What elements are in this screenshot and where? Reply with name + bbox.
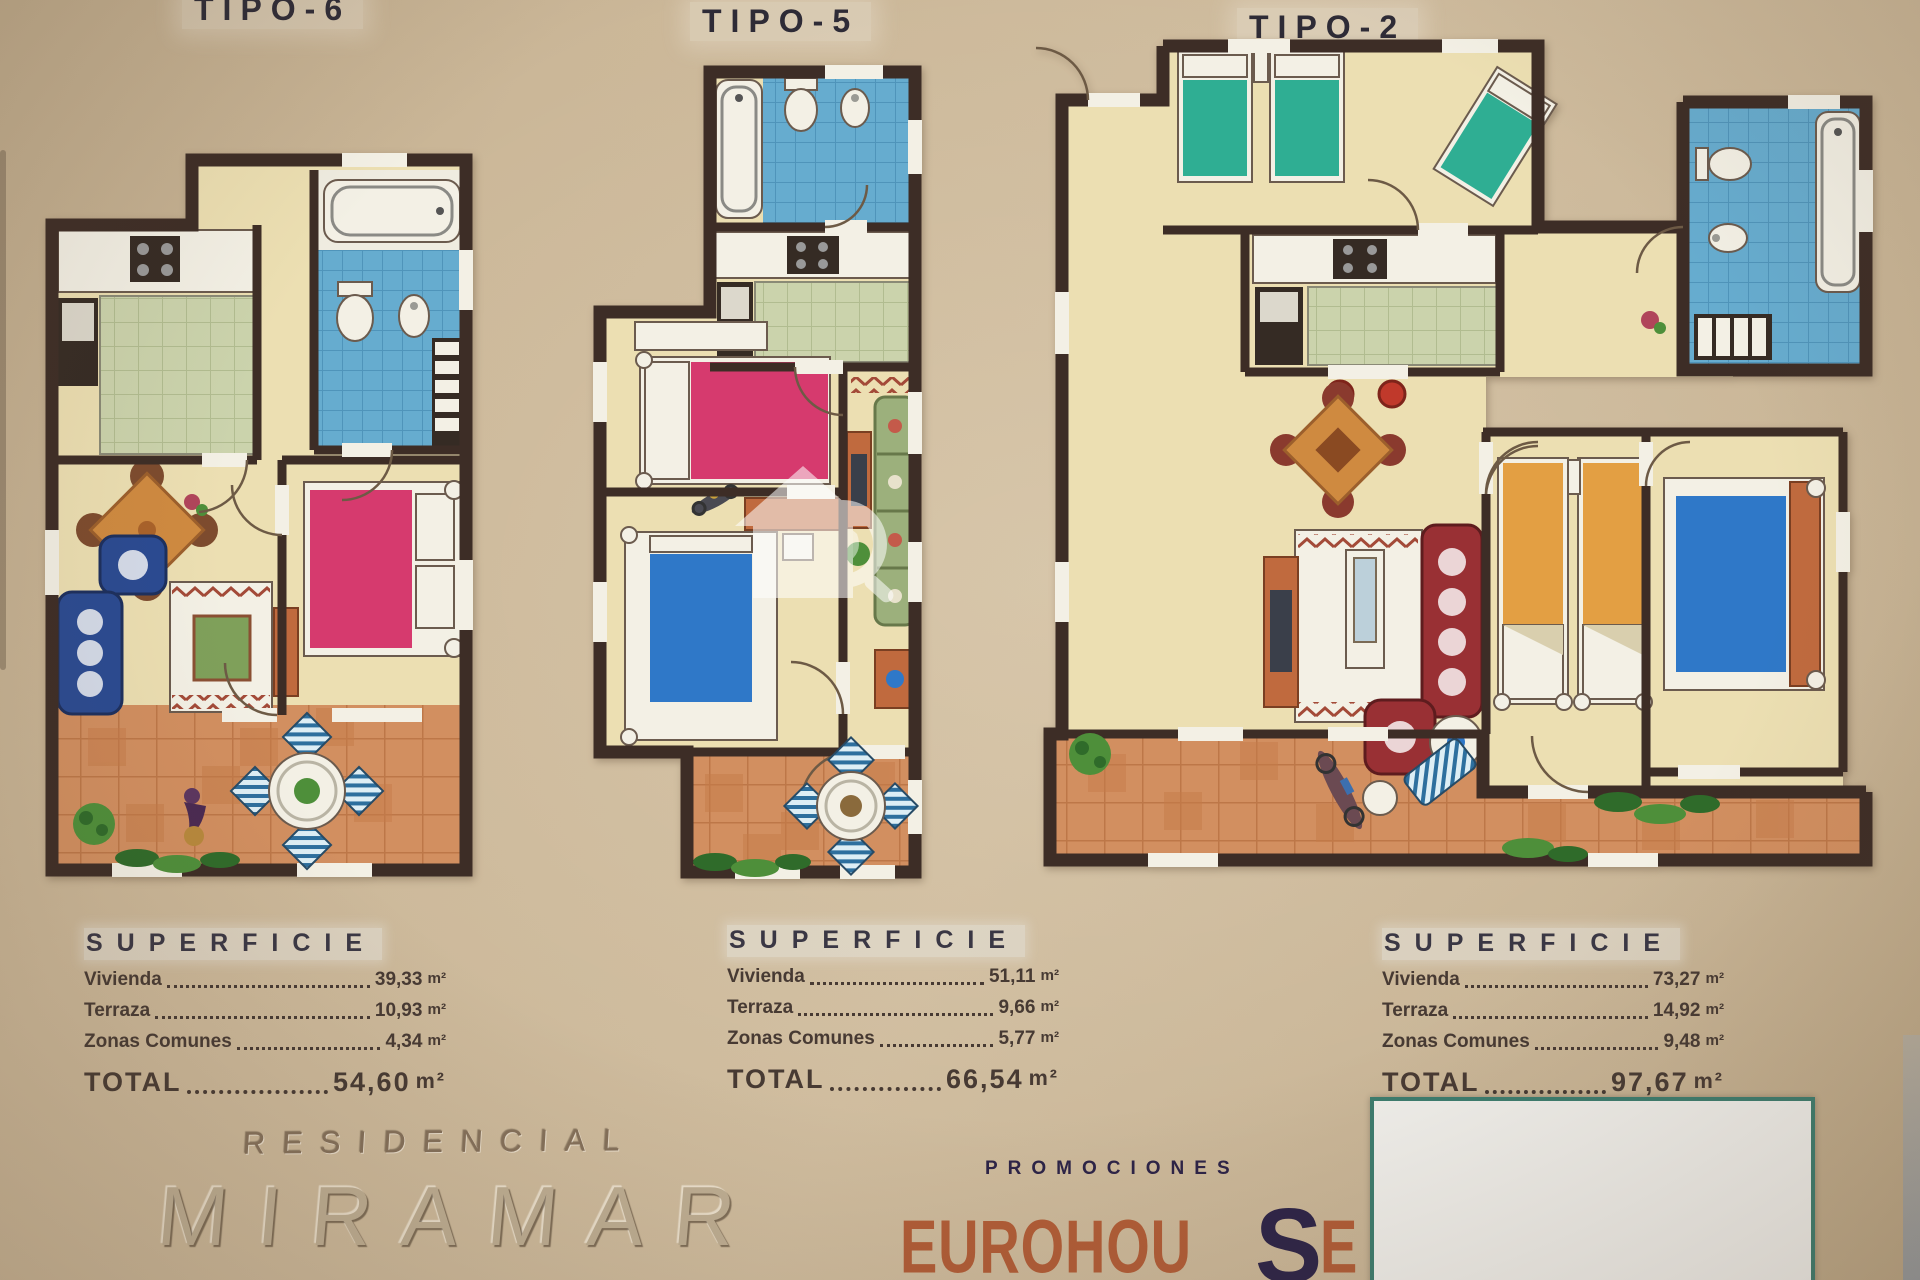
table-total-row: TOTAL 66,54 m² xyxy=(727,1056,1059,1101)
row-value: 4,34 xyxy=(385,1027,422,1057)
table-total-row: TOTAL 54,60 m² xyxy=(84,1059,446,1104)
dotted-leader xyxy=(1453,1016,1648,1019)
tv-icon xyxy=(1264,557,1298,707)
house-magnifier-watermark xyxy=(725,448,910,613)
total-value: 54,60 xyxy=(333,1060,411,1104)
table-row: Zonas Comunes 9,48 m² xyxy=(1382,1026,1724,1057)
rug-icon xyxy=(170,582,272,712)
row-label: Terraza xyxy=(84,996,150,1026)
table-row: Vivienda 39,33 m² xyxy=(84,964,446,995)
single-bed-icon xyxy=(1270,50,1344,182)
bathroom xyxy=(716,74,913,224)
row-unit: m² xyxy=(427,964,446,995)
wardrobe-icon xyxy=(635,322,767,350)
row-label: Vivienda xyxy=(84,965,162,995)
toilet-icon xyxy=(1696,148,1751,180)
dotted-leader xyxy=(810,982,984,985)
brand-pre-s: EUROHOU xyxy=(900,1204,1192,1280)
row-value: 14,92 xyxy=(1653,996,1701,1026)
row-value: 10,93 xyxy=(375,996,423,1026)
plan-title-tipo-6: TIPO-6 xyxy=(182,0,363,29)
plan-title-tipo-5: TIPO-5 xyxy=(690,2,871,41)
row-value: 51,11 xyxy=(989,962,1036,992)
table-row: Vivienda 73,27 m² xyxy=(1382,964,1724,995)
dotted-leader xyxy=(880,1044,994,1047)
shelf-icon xyxy=(432,338,462,446)
bedroom-blue xyxy=(1664,478,1825,690)
promociones-label: PROMOCIONES xyxy=(985,1158,1240,1180)
residence-name: MIRAMAR xyxy=(154,1168,769,1265)
total-label: TOTAL xyxy=(727,1057,825,1101)
nightstand-icon xyxy=(1254,52,1268,82)
row-value: 9,66 xyxy=(998,993,1035,1023)
row-label: Terraza xyxy=(727,993,793,1023)
bathroom xyxy=(1688,106,1862,366)
row-label: Vivienda xyxy=(727,962,805,992)
total-unit: m² xyxy=(1029,1056,1059,1101)
single-bed-icon xyxy=(1574,458,1652,710)
table-row: Terraza 10,93 m² xyxy=(84,995,446,1026)
fridge-icon xyxy=(1255,287,1303,365)
dotted-leader xyxy=(237,1047,381,1050)
row-value: 73,27 xyxy=(1653,965,1701,995)
row-label: Vivienda xyxy=(1382,965,1460,995)
residencial-label: RESIDENCIAL xyxy=(242,1122,638,1161)
superficie-table-tipo-6: SUPERFICIE Vivienda 39,33 m² Terraza 10,… xyxy=(84,928,446,1104)
row-unit: m² xyxy=(1040,1023,1059,1054)
rug-icon xyxy=(851,377,913,393)
superficie-heading: SUPERFICIE xyxy=(84,928,382,960)
table-row: Zonas Comunes 4,34 m² xyxy=(84,1026,446,1057)
row-label: Terraza xyxy=(1382,996,1448,1026)
row-value: 9,48 xyxy=(1663,1027,1700,1057)
dotted-leader xyxy=(1485,1090,1607,1094)
superficie-table-tipo-5: SUPERFICIE Vivienda 51,11 m² Terraza 9,6… xyxy=(727,925,1059,1101)
bidet-icon xyxy=(841,89,869,127)
single-bed-icon xyxy=(1178,50,1252,182)
toilet-icon xyxy=(337,282,373,341)
dotted-leader xyxy=(830,1087,942,1091)
bathtub-icon xyxy=(716,80,762,218)
counter xyxy=(100,296,254,454)
dotted-leader xyxy=(798,1013,993,1016)
superficie-heading: SUPERFICIE xyxy=(1382,928,1680,960)
sofa-icon xyxy=(58,592,122,714)
row-unit: m² xyxy=(1040,992,1059,1023)
armchair-icon xyxy=(100,536,166,594)
shelf-icon xyxy=(1694,314,1772,360)
bathtub-icon xyxy=(324,180,460,242)
single-bed-icon xyxy=(1494,458,1572,710)
mirror-icon xyxy=(1346,550,1384,668)
nightstand-icon xyxy=(1568,460,1580,494)
superficie-heading: SUPERFICIE xyxy=(727,925,1025,957)
table-row: Zonas Comunes 5,77 m² xyxy=(727,1023,1059,1054)
photo-edge-sliver xyxy=(0,150,6,670)
brochure-photo: TIPO-6 xyxy=(0,0,1920,1280)
sofa-icon xyxy=(1422,525,1482,717)
row-label: Zonas Comunes xyxy=(84,1027,232,1057)
row-unit: m² xyxy=(427,995,446,1026)
fridge-icon xyxy=(58,298,98,386)
floor-plan-tipo-2 xyxy=(1028,42,1873,877)
row-value: 39,33 xyxy=(375,965,423,995)
superficie-table-tipo-2: SUPERFICIE Vivienda 73,27 m² Terraza 14,… xyxy=(1382,928,1724,1104)
table-row: Vivienda 51,11 m² xyxy=(727,961,1059,992)
blank-label-box xyxy=(1370,1097,1815,1280)
dotted-leader xyxy=(187,1090,329,1094)
dotted-leader xyxy=(1465,985,1648,988)
bathroom xyxy=(314,170,464,450)
total-value: 66,54 xyxy=(946,1057,1024,1101)
bathtub-icon xyxy=(1816,112,1860,292)
row-label: Zonas Comunes xyxy=(727,1024,875,1054)
bidet-icon xyxy=(399,295,429,337)
row-unit: m² xyxy=(427,1026,446,1057)
row-label: Zonas Comunes xyxy=(1382,1027,1530,1057)
brand-big-s: S xyxy=(1255,1186,1322,1280)
stone-table-icon xyxy=(1363,781,1397,815)
table-row: Terraza 14,92 m² xyxy=(1382,995,1724,1026)
plant-icon xyxy=(1069,733,1111,775)
dotted-leader xyxy=(1535,1047,1659,1050)
row-unit: m² xyxy=(1705,1026,1724,1057)
double-bed-icon xyxy=(1664,478,1825,690)
stove-icon xyxy=(787,236,839,274)
row-value: 5,77 xyxy=(998,1024,1035,1054)
row-unit: m² xyxy=(1705,964,1724,995)
toilet-icon xyxy=(785,78,817,131)
row-unit: m² xyxy=(1040,961,1059,992)
floor-plan-tipo-6 xyxy=(42,130,472,878)
bidet-icon xyxy=(1709,224,1747,252)
dotted-leader xyxy=(167,985,370,988)
total-unit: m² xyxy=(416,1059,446,1104)
photo-edge-strip xyxy=(1903,1035,1920,1280)
table-row: Terraza 9,66 m² xyxy=(727,992,1059,1023)
total-label: TOTAL xyxy=(84,1060,182,1104)
stove-icon xyxy=(1333,239,1387,279)
dotted-leader xyxy=(155,1016,370,1019)
row-unit: m² xyxy=(1705,995,1724,1026)
stool-icon xyxy=(1379,381,1405,407)
stove-icon xyxy=(130,236,180,282)
double-bed-icon xyxy=(304,481,463,657)
